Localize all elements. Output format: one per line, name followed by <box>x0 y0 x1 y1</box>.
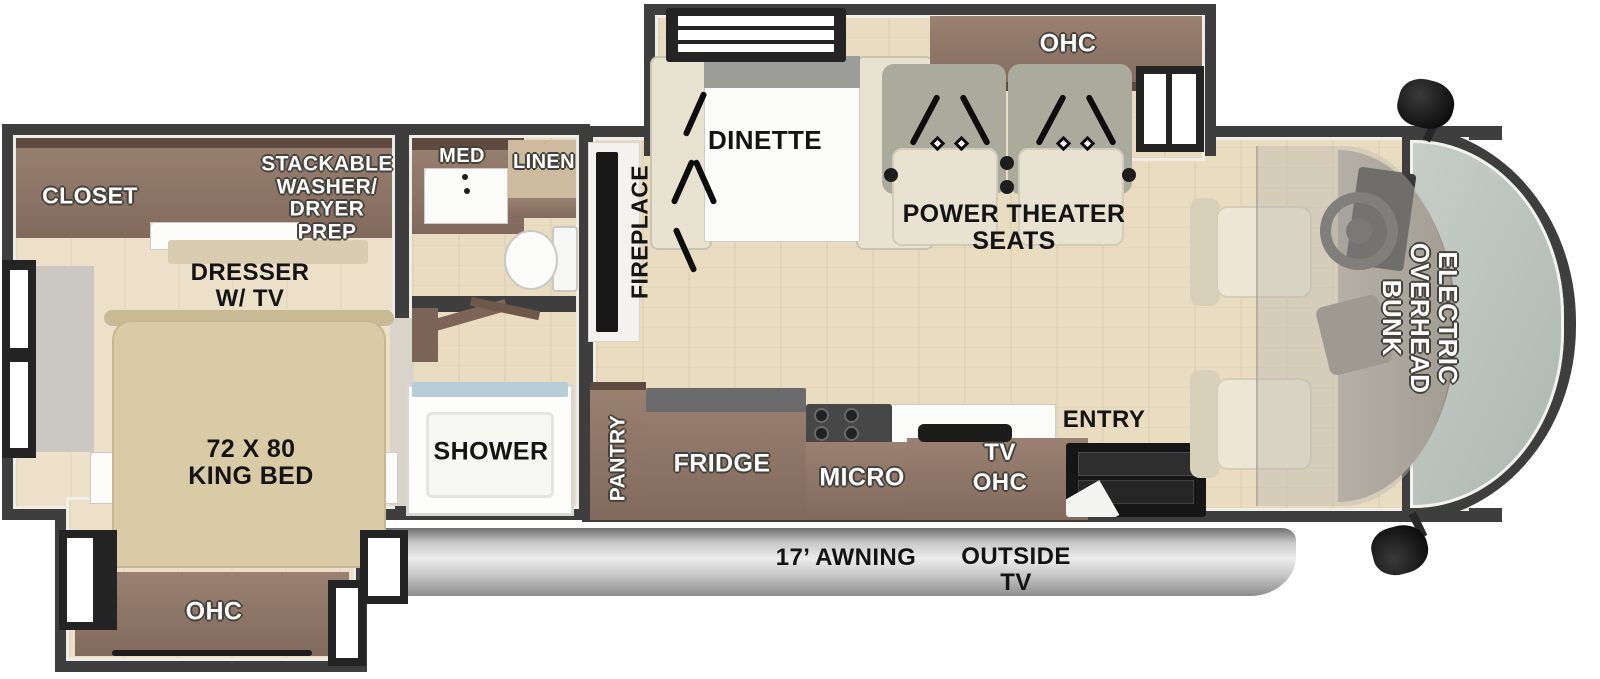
body-side-window-pane <box>368 538 400 596</box>
pantry-trim <box>590 382 646 390</box>
dinette-bench-left <box>650 56 712 250</box>
tv-ohc-label: TVOHC <box>973 438 1028 498</box>
burner-4 <box>844 426 859 441</box>
bedroom-window-sill <box>36 266 94 452</box>
toilet-bowl <box>504 230 558 290</box>
entry-label: ENTRY <box>1063 407 1145 433</box>
theater-cup-dot-4 <box>1122 168 1136 182</box>
bunk-label: ELECTRICOVERHEADBUNK <box>1378 243 1462 394</box>
entry-step-1 <box>1078 452 1194 476</box>
awning-label: 17’ AWNING <box>776 545 916 571</box>
burner-2 <box>844 408 859 423</box>
shower-label: SHOWER <box>434 439 549 466</box>
bedroom-ohc-handle <box>112 650 312 656</box>
living-ohc-label: OHC <box>1040 31 1097 58</box>
linen-label: LINEN <box>513 152 575 174</box>
entry-steps <box>1066 443 1206 517</box>
outside-tv-label: OUTSIDETV <box>961 544 1070 596</box>
fridge-top <box>646 388 806 412</box>
fireplace-label: FIREPLACE <box>628 165 653 299</box>
king-bed-label: 72 X 80KING BED <box>188 436 313 490</box>
dinette-window-slat-3 <box>678 44 834 52</box>
theater-cup-dot-3 <box>1000 180 1014 194</box>
bedroom-ohc-label: OHC <box>186 599 243 626</box>
med-label: MED <box>439 146 485 168</box>
theater-cup-dot-2 <box>1000 156 1014 170</box>
theater-label: POWER THEATERSEATS <box>903 201 1126 255</box>
bed-slide-right-window-pane <box>336 588 358 658</box>
fridge-label: FRIDGE <box>674 451 771 478</box>
dresser-label: DRESSERW/ TV <box>191 260 310 312</box>
micro-label: MICRO <box>819 465 904 492</box>
dinette-window-slat-2 <box>678 30 834 40</box>
shower-door-corner <box>412 308 438 362</box>
faucet-dot-1 <box>462 174 468 180</box>
shower-glass-edge <box>412 382 568 397</box>
rv-floorplan: CLOSET STACKABLEWASHER/ DRYERPREP DRESSE… <box>0 0 1600 679</box>
dinette-window-slat-1 <box>678 16 834 26</box>
burner-1 <box>814 408 829 423</box>
linen-cabinet-front <box>508 198 576 218</box>
faucet-dot-2 <box>464 188 470 194</box>
dinette-label: DINETTE <box>708 126 822 154</box>
theater-cup-dot-1 <box>884 168 898 182</box>
fireplace-tv <box>596 152 618 332</box>
bedroom-left-window-mullion <box>8 348 30 362</box>
washer-prep-label: STACKABLEWASHER/ DRYERPREP <box>261 154 393 245</box>
theater-window-pane-2 <box>1172 74 1196 144</box>
pantry-label: PANTRY <box>608 415 631 501</box>
closet-cabinet-trim <box>16 138 392 148</box>
closet-label: CLOSET <box>42 184 138 209</box>
theater-window-pane-1 <box>1144 74 1166 144</box>
burner-3 <box>814 426 829 441</box>
bed-slide-left-window-pane <box>67 538 93 622</box>
